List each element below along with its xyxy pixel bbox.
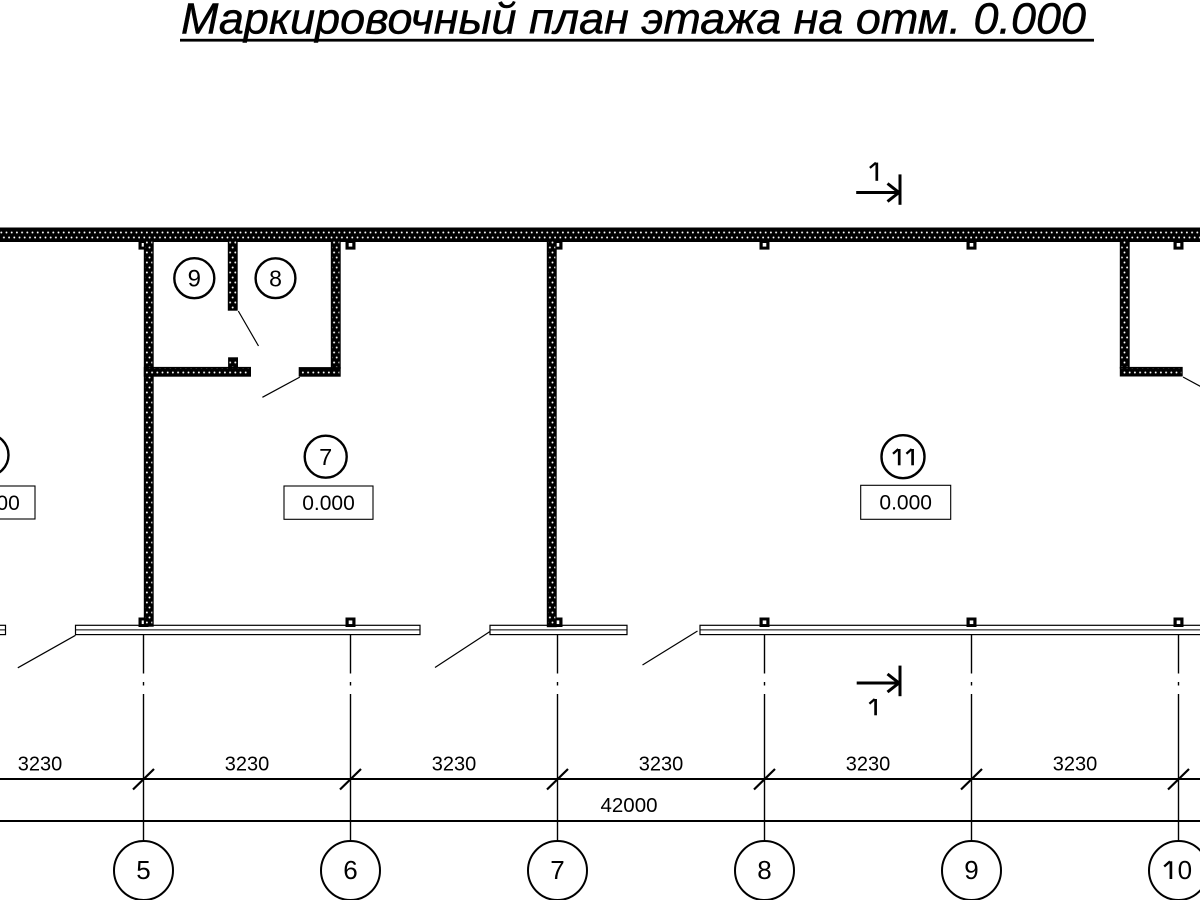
- svg-text:7: 7: [550, 855, 564, 885]
- svg-text:8: 8: [269, 265, 282, 291]
- svg-text:3230: 3230: [639, 754, 684, 776]
- svg-text:8: 8: [757, 855, 771, 885]
- svg-text:5: 5: [136, 855, 150, 885]
- svg-text:7: 7: [319, 444, 332, 470]
- svg-text:3230: 3230: [18, 754, 63, 776]
- svg-text:6: 6: [343, 855, 357, 885]
- svg-text:0.000: 0.000: [0, 492, 20, 515]
- svg-text:3230: 3230: [432, 754, 477, 776]
- svg-text:9: 9: [964, 855, 978, 885]
- svg-text:0: 0: [1178, 855, 1192, 885]
- svg-text:3230: 3230: [225, 754, 270, 776]
- svg-text:42000: 42000: [600, 794, 657, 817]
- svg-text:3230: 3230: [846, 754, 891, 776]
- svg-text:3230: 3230: [1053, 754, 1098, 776]
- svg-text:Маркировочный план этажа на от: Маркировочный план этажа на отм. 0.000: [181, 0, 1087, 44]
- svg-text:0.000: 0.000: [302, 492, 355, 515]
- svg-text:9: 9: [188, 266, 201, 293]
- svg-text:0.000: 0.000: [879, 492, 932, 515]
